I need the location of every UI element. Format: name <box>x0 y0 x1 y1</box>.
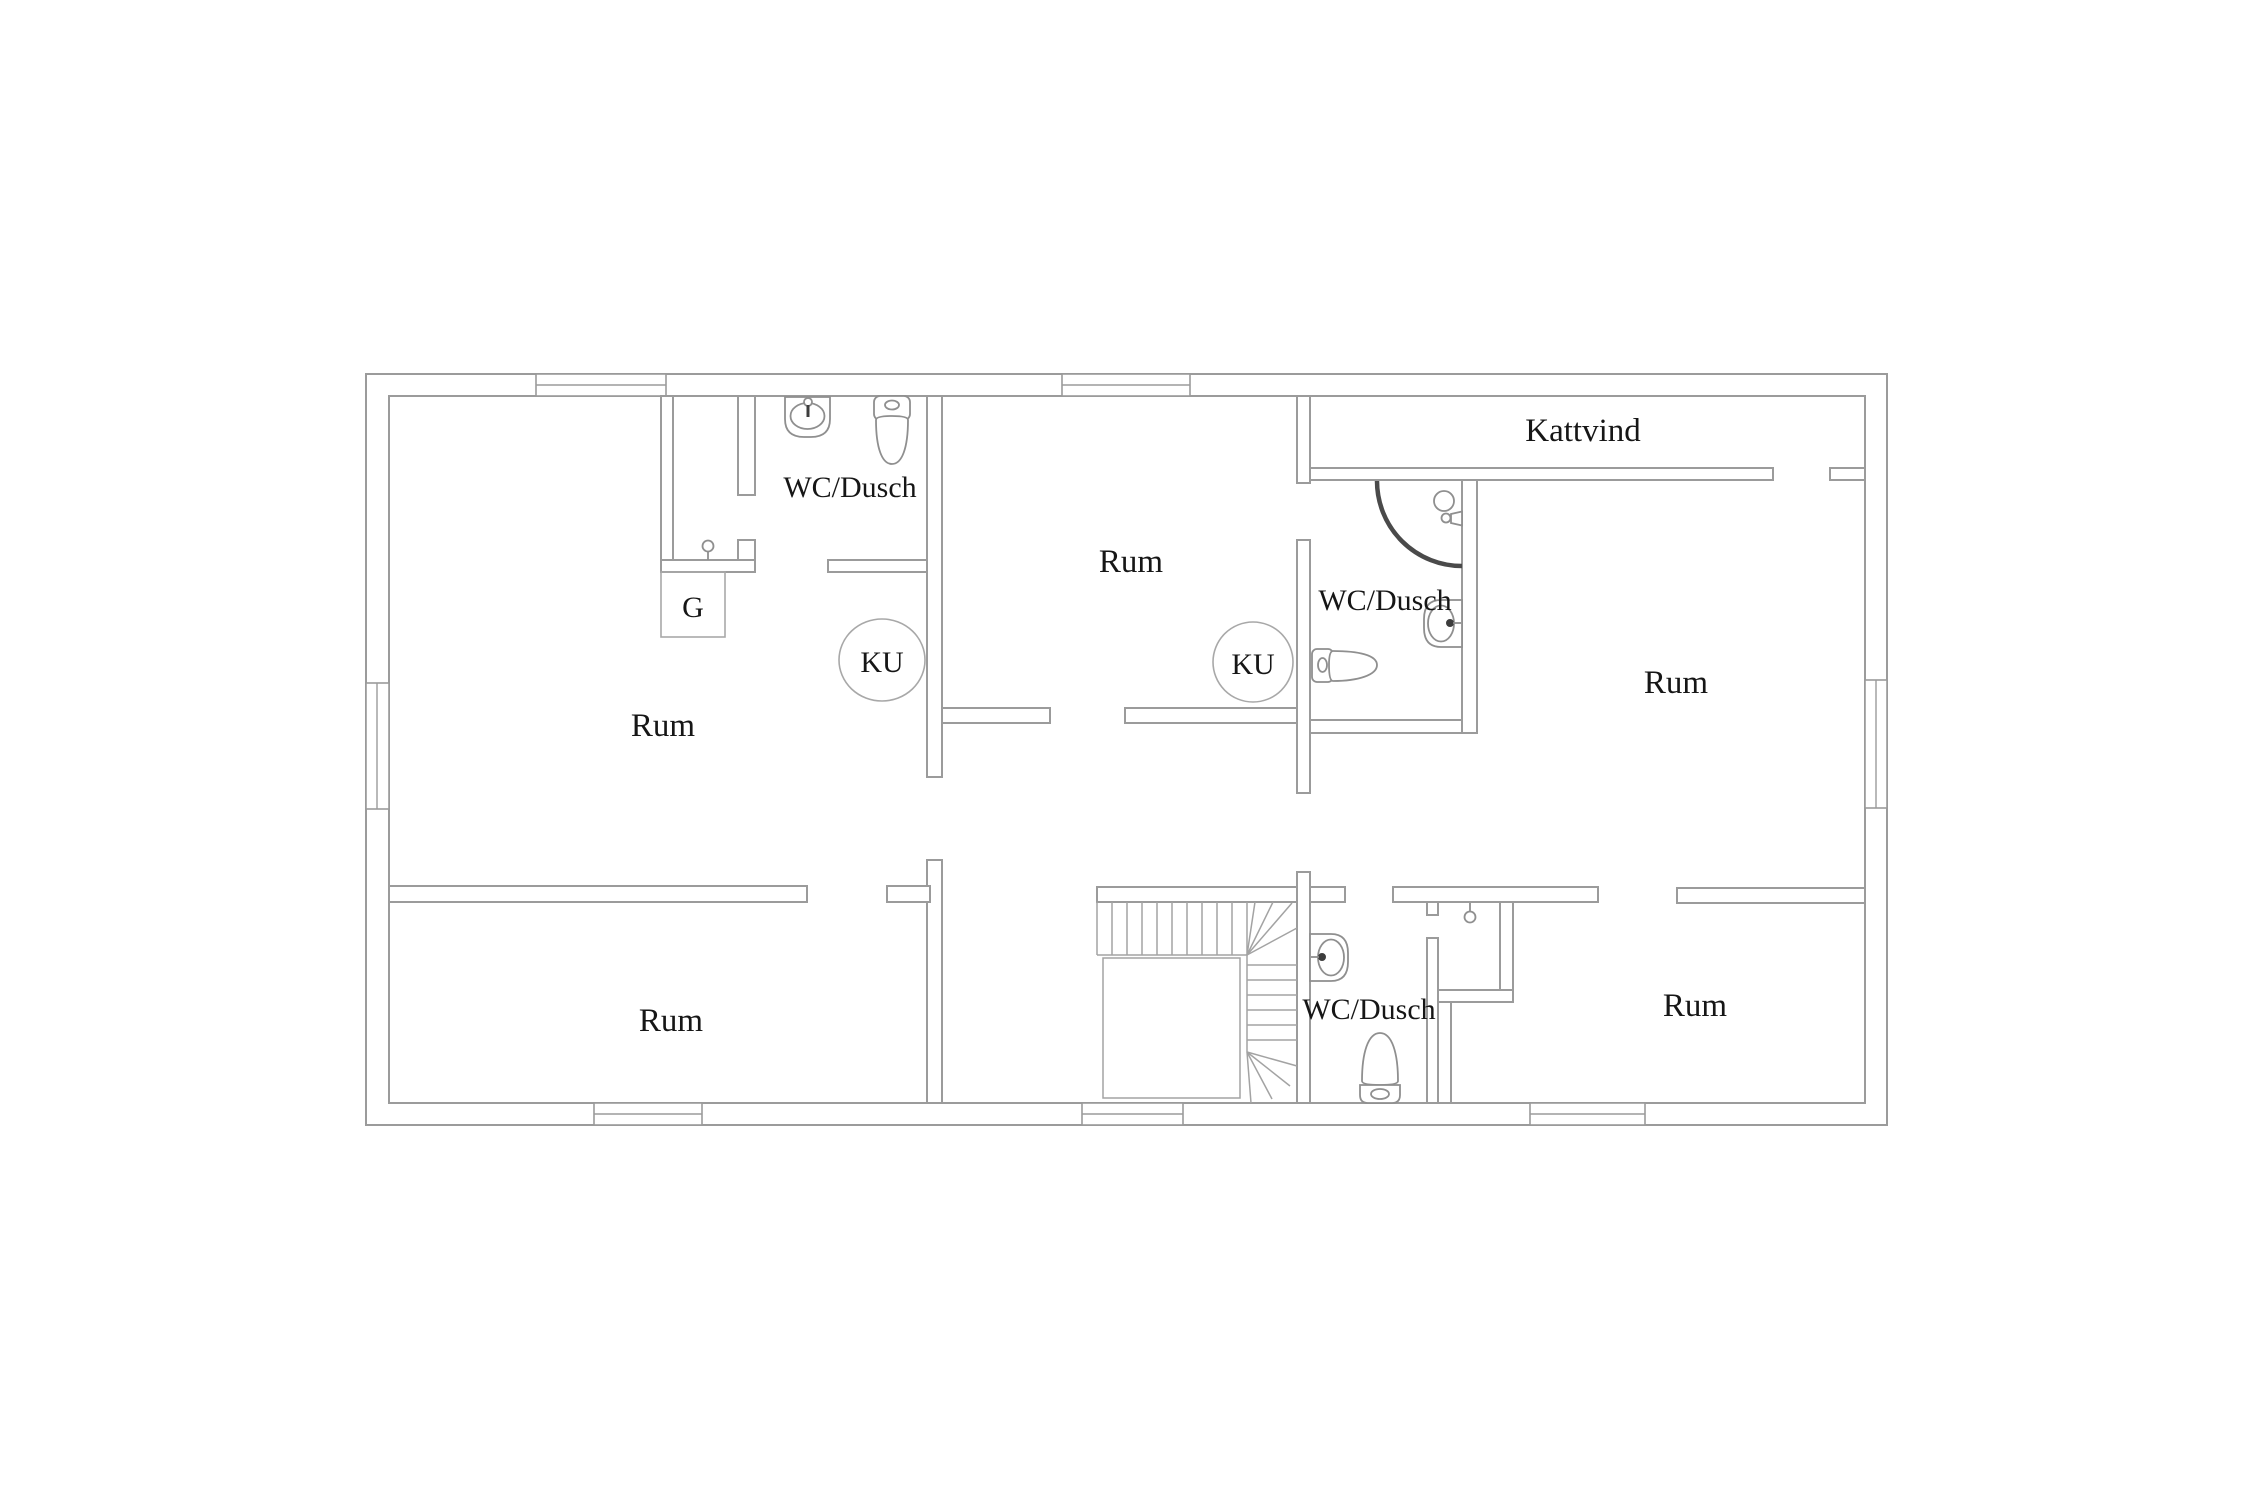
window-symbol <box>366 683 389 809</box>
bathroom-label: WC/Dusch <box>1318 584 1451 617</box>
toilet-icon <box>1360 1033 1400 1103</box>
wall-segment <box>942 708 1050 723</box>
plan-line <box>1434 491 1454 511</box>
room-label: Rum <box>1663 988 1728 1024</box>
room-label: Rum <box>1099 544 1164 580</box>
plan-line <box>1103 958 1240 1098</box>
window-symbol <box>536 374 666 396</box>
bathroom-label: WC/Dusch <box>783 471 916 504</box>
wall-segment <box>828 560 937 572</box>
plan-line <box>1247 928 1297 955</box>
interior-walls <box>389 396 1865 1103</box>
window-symbol <box>1082 1103 1183 1125</box>
attic-label: Kattvind <box>1525 413 1641 449</box>
wall-segment <box>1297 396 1310 483</box>
plan-line <box>703 541 714 552</box>
plan-line <box>1447 620 1454 627</box>
staircase <box>1097 902 1297 1103</box>
plan-line <box>876 416 908 464</box>
wall-segment <box>1310 720 1462 733</box>
room-label: Rum <box>1644 665 1709 701</box>
wall-segment <box>1097 887 1297 902</box>
room-label: Rum <box>631 708 696 744</box>
floor-plan-drawing: Rum Rum Rum Rum Rum WC/Dusch WC/Dusch WC… <box>0 0 2250 1500</box>
plan-line <box>804 398 812 406</box>
wall-segment <box>927 396 942 777</box>
plan-line <box>1371 1089 1389 1099</box>
chimney-label: KU <box>1231 648 1275 681</box>
wall-segment <box>1677 888 1865 903</box>
toilet-icon <box>874 396 910 464</box>
shower-head-icon <box>1434 491 1454 511</box>
plan-line <box>1451 512 1462 526</box>
room-label: Rum <box>639 1003 704 1039</box>
wall-segment <box>1438 1002 1451 1103</box>
plan-line <box>389 396 1865 1103</box>
ceiling-hook-icon <box>1465 903 1476 923</box>
wall-segment <box>887 886 930 902</box>
plan-line <box>1362 1033 1398 1085</box>
plan-line <box>1329 651 1377 681</box>
plan-line <box>885 401 899 410</box>
plan-line <box>1247 1052 1290 1086</box>
wall-segment <box>1462 480 1477 733</box>
sink-icon <box>1310 934 1348 981</box>
toilet-icon <box>1312 649 1377 682</box>
wall-segment <box>1438 990 1513 1002</box>
wardrobe-label: G <box>682 591 704 624</box>
bathroom-label: WC/Dusch <box>1302 993 1435 1026</box>
wall-segment <box>1500 902 1513 1002</box>
wall-segment <box>1427 902 1438 915</box>
wall-segment <box>661 560 755 572</box>
wall-segment <box>738 396 755 495</box>
floor-plan-page: Rum Rum Rum Rum Rum WC/Dusch WC/Dusch WC… <box>0 0 2250 1500</box>
wall-segment <box>1310 468 1773 480</box>
sink-icon <box>785 397 830 437</box>
shower-valve-icon <box>1442 512 1463 526</box>
wall-segment <box>661 396 673 560</box>
wall-segment <box>1125 708 1297 723</box>
wall-segment <box>389 886 807 902</box>
plan-line <box>1247 1052 1297 1066</box>
plan-line <box>1465 912 1476 923</box>
window-symbol <box>1530 1103 1645 1125</box>
wall-segment <box>1297 872 1310 1103</box>
plan-line <box>1319 954 1326 961</box>
wall-segment <box>1393 887 1598 902</box>
window-symbol <box>1062 374 1190 396</box>
plan-line <box>366 374 1887 1125</box>
window-symbol <box>594 1103 702 1125</box>
wall-segment <box>1310 887 1345 902</box>
wall-segment <box>1297 540 1310 793</box>
plan-line <box>1442 514 1451 523</box>
windows <box>366 374 1887 1125</box>
outer-walls <box>366 374 1887 1125</box>
room-labels: Rum Rum Rum Rum Rum WC/Dusch WC/Dusch WC… <box>631 413 1728 1039</box>
ceiling-hook-icon <box>703 541 714 561</box>
plan-line <box>1318 658 1327 672</box>
window-symbol <box>1865 680 1887 808</box>
chimney-label: KU <box>860 646 904 679</box>
wall-segment <box>1830 468 1865 480</box>
